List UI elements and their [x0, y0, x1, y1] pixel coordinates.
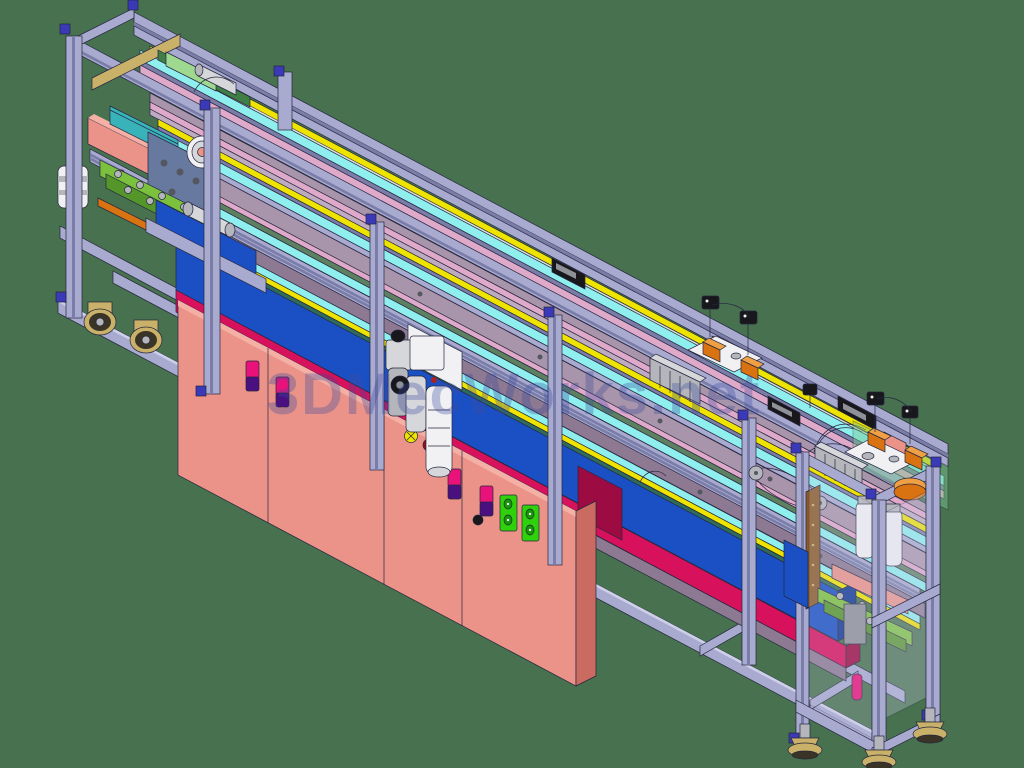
corner-connector: [128, 0, 138, 10]
sensor-head: [702, 296, 719, 309]
sensor-head: [740, 311, 757, 324]
watermark: 3DMecWorks.net: [267, 362, 761, 427]
door-knob: [473, 515, 483, 525]
corner-connector: [866, 489, 876, 499]
corner-connector: [60, 24, 70, 34]
post-connector: [366, 214, 376, 224]
rear-post-stub: [278, 72, 292, 130]
corner-connector: [200, 100, 210, 110]
sensor-head: [803, 384, 817, 395]
sensor-head: [867, 392, 884, 405]
frl-knob: [391, 330, 405, 342]
blue-panel-inner: [784, 540, 808, 608]
door-handle: [246, 361, 259, 391]
door-handle: [480, 486, 493, 516]
glass-panel-front: [809, 470, 872, 738]
corner-connector: [274, 66, 284, 76]
right-tower: [784, 443, 947, 768]
caster-left: [130, 320, 162, 353]
corner-connector: [791, 443, 801, 453]
sensor-head: [902, 406, 918, 418]
caster-left: [84, 302, 116, 335]
door-handle: [448, 469, 461, 499]
post-connector: [544, 307, 554, 317]
cabinet-side-face: [576, 501, 596, 686]
corner-connector: [56, 292, 66, 302]
cad-render-viewport: 3DMecWorks.net: [0, 0, 1024, 768]
corner-connector: [931, 457, 941, 467]
corner-connector: [196, 386, 206, 396]
machine-render: 3DMecWorks.net: [0, 0, 1024, 768]
